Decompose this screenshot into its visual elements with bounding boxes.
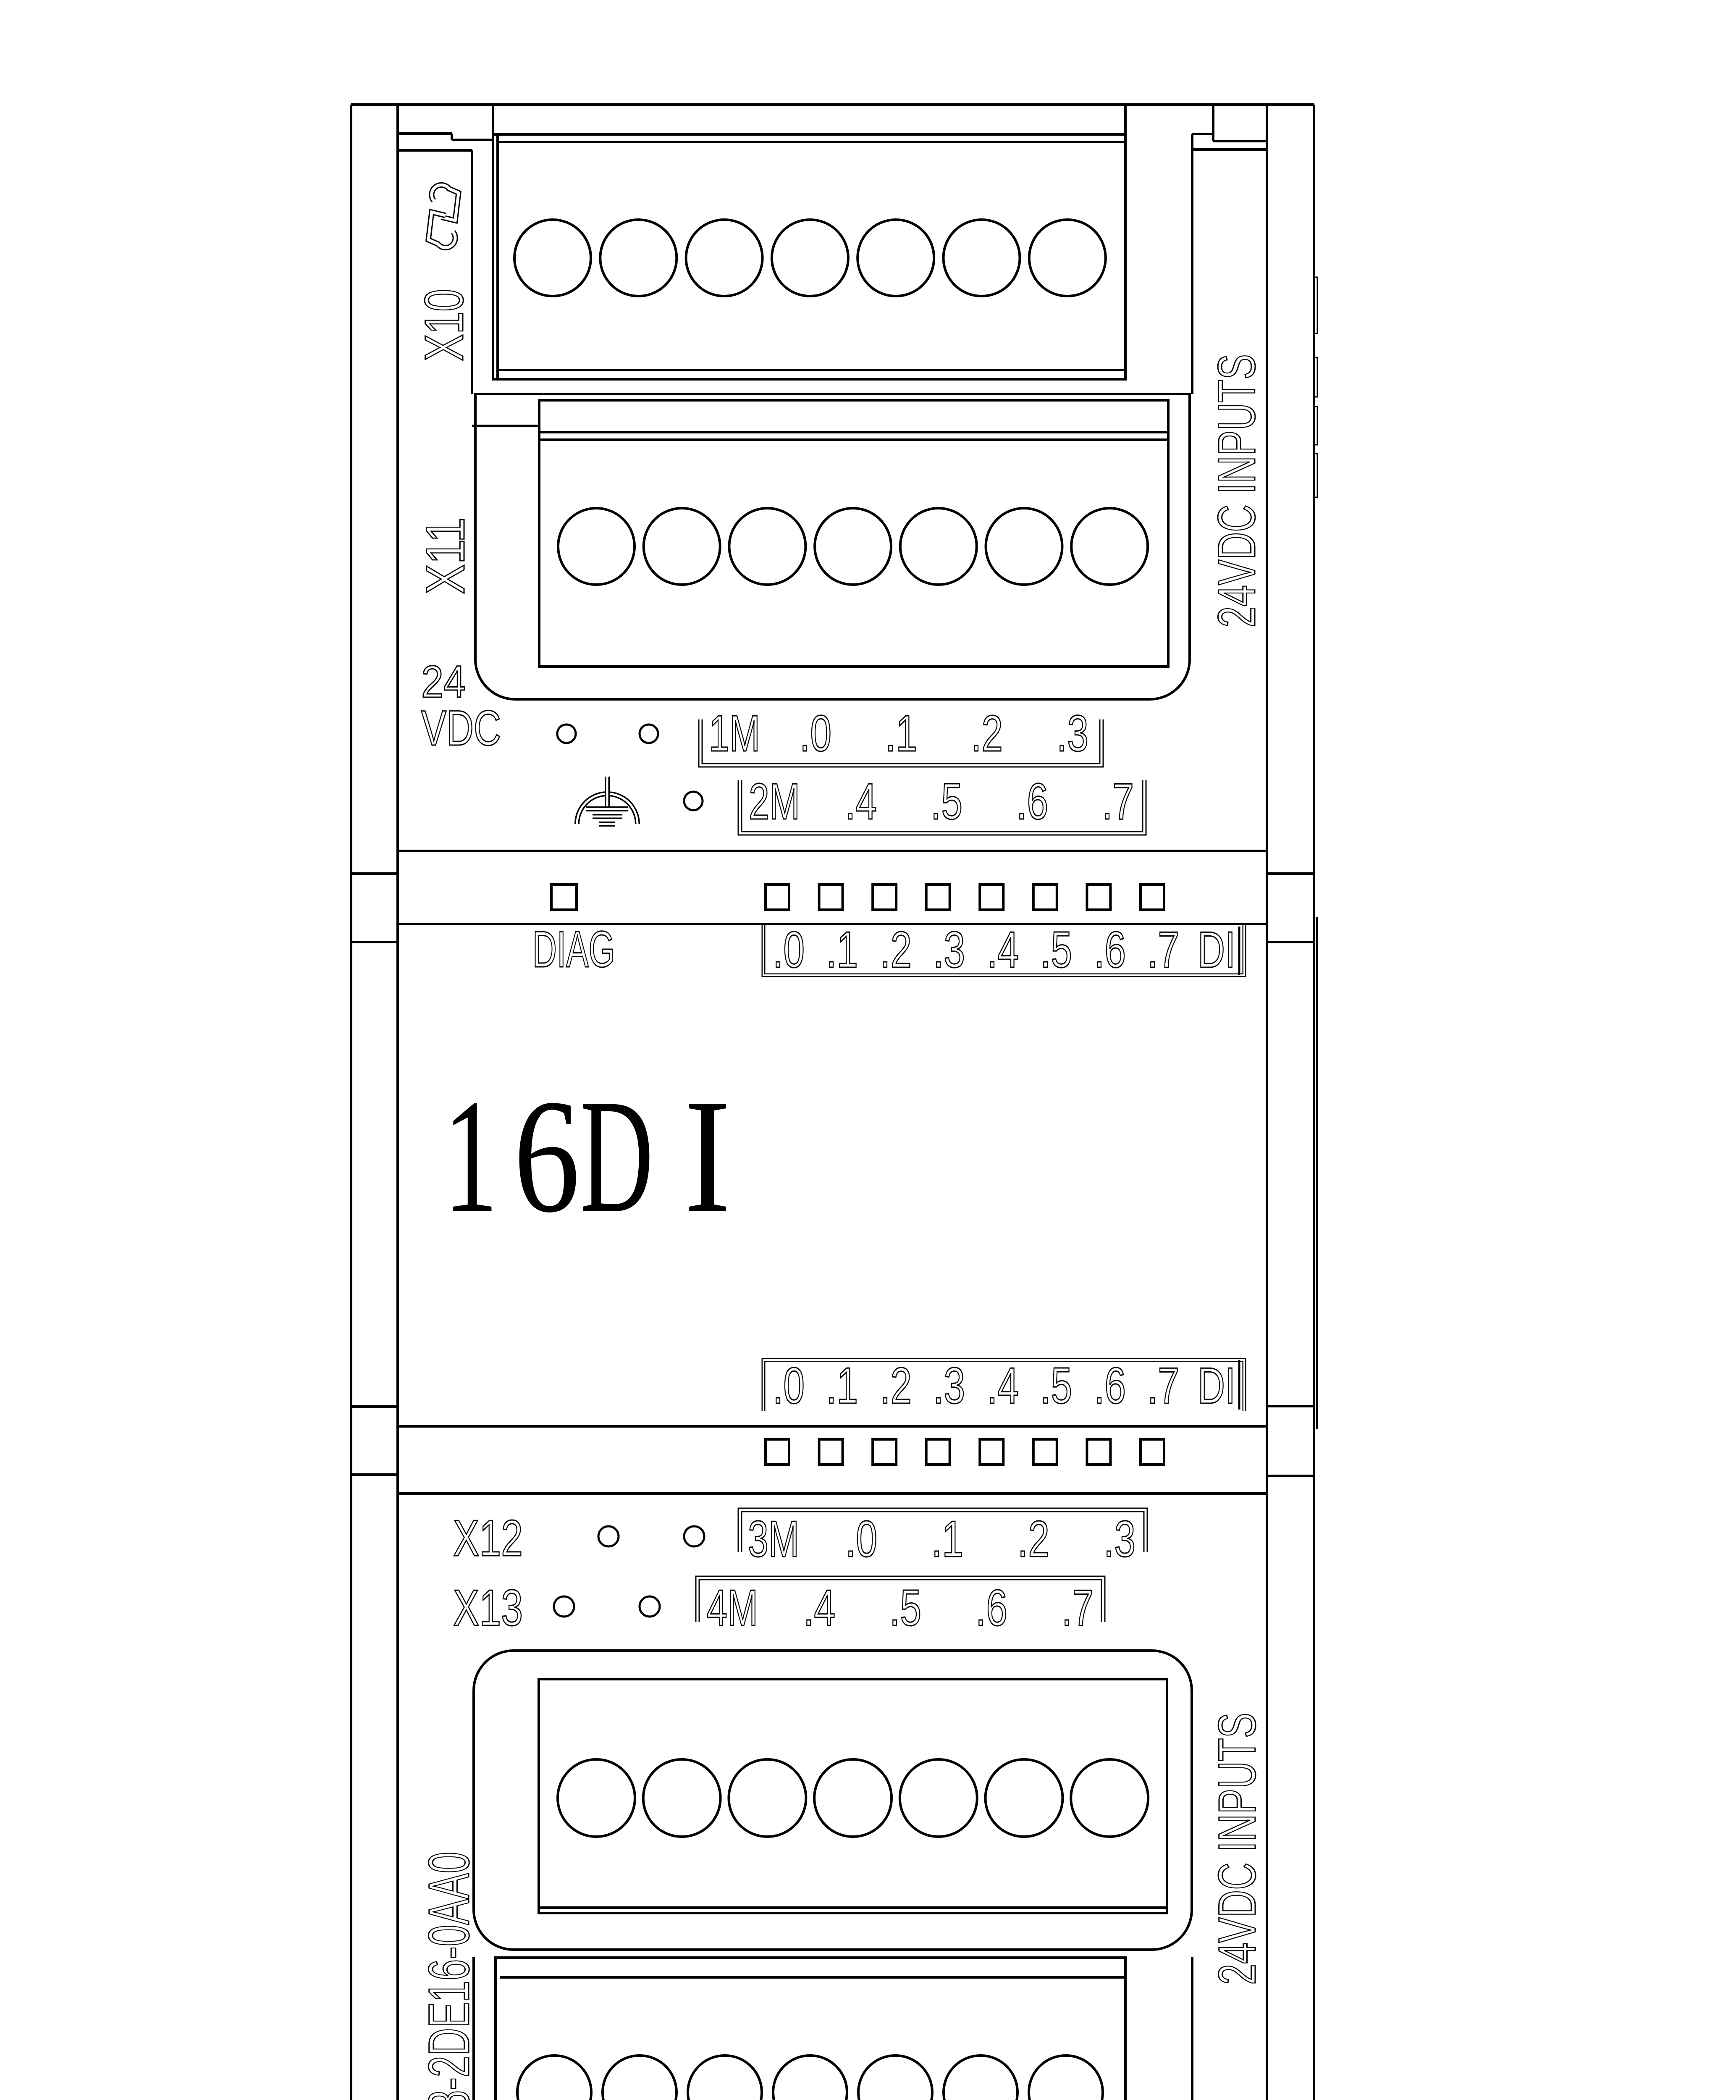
svg-text:.1: .1 bbox=[931, 1510, 963, 1567]
svg-text:DI: DI bbox=[1198, 1357, 1235, 1414]
svg-text:D: D bbox=[580, 1066, 653, 1246]
svg-text:.2: .2 bbox=[880, 921, 912, 978]
svg-text:.4: .4 bbox=[845, 773, 877, 830]
svg-text:.6: .6 bbox=[1094, 1357, 1126, 1414]
svg-text:.3: .3 bbox=[1104, 1510, 1135, 1567]
svg-text:.4: .4 bbox=[803, 1579, 835, 1636]
svg-text:.5: .5 bbox=[1040, 921, 1072, 978]
svg-text:X12: X12 bbox=[453, 1509, 523, 1567]
svg-text:1: 1 bbox=[443, 1066, 498, 1246]
svg-text:.1: .1 bbox=[826, 1357, 858, 1414]
svg-text:I: I bbox=[684, 1066, 731, 1246]
svg-text:.7: .7 bbox=[1147, 921, 1179, 978]
svg-text:.7: .7 bbox=[1062, 1579, 1094, 1636]
svg-text:2M: 2M bbox=[749, 773, 800, 830]
svg-text:DI: DI bbox=[1198, 921, 1235, 978]
svg-text:4M: 4M bbox=[707, 1579, 758, 1636]
svg-text:.0: .0 bbox=[845, 1510, 877, 1567]
svg-text:6: 6 bbox=[514, 1066, 580, 1246]
svg-text:DIAG: DIAG bbox=[532, 921, 615, 978]
svg-text:.2: .2 bbox=[1017, 1510, 1049, 1567]
svg-text:.2: .2 bbox=[971, 705, 1003, 762]
svg-text:.2: .2 bbox=[880, 1357, 912, 1414]
svg-text:.6: .6 bbox=[976, 1579, 1007, 1636]
svg-text:.1: .1 bbox=[826, 921, 858, 978]
svg-text:.0: .0 bbox=[773, 921, 805, 978]
svg-text:X11: X11 bbox=[414, 517, 476, 594]
svg-text:.5: .5 bbox=[931, 773, 962, 830]
svg-text:X13: X13 bbox=[453, 1579, 523, 1636]
svg-text:.4: .4 bbox=[987, 921, 1019, 978]
svg-text:VDC: VDC bbox=[421, 701, 501, 756]
svg-text:.3: .3 bbox=[933, 1357, 965, 1414]
svg-text:.6: .6 bbox=[1016, 773, 1048, 830]
svg-text:X10: X10 bbox=[413, 289, 475, 361]
svg-text:24VDC INPUTS: 24VDC INPUTS bbox=[1208, 1713, 1267, 1985]
svg-text:288-2DE16-0AA0: 288-2DE16-0AA0 bbox=[417, 1852, 481, 2100]
svg-text:.5: .5 bbox=[1040, 1357, 1072, 1414]
svg-text:.5: .5 bbox=[889, 1579, 921, 1636]
svg-text:3M: 3M bbox=[748, 1510, 799, 1567]
svg-text:.7: .7 bbox=[1147, 1357, 1179, 1414]
svg-text:.7: .7 bbox=[1102, 773, 1134, 830]
svg-text:.4: .4 bbox=[987, 1357, 1019, 1414]
svg-text:24: 24 bbox=[421, 656, 466, 707]
svg-text:.1: .1 bbox=[885, 705, 917, 762]
svg-text:.0: .0 bbox=[800, 705, 831, 762]
svg-text:.3: .3 bbox=[933, 921, 965, 978]
svg-text:.0: .0 bbox=[773, 1357, 805, 1414]
svg-text:.3: .3 bbox=[1057, 705, 1088, 762]
svg-text:.6: .6 bbox=[1094, 921, 1126, 978]
svg-text:1M: 1M bbox=[709, 705, 760, 762]
svg-text:24VDC INPUTS: 24VDC INPUTS bbox=[1208, 354, 1266, 627]
